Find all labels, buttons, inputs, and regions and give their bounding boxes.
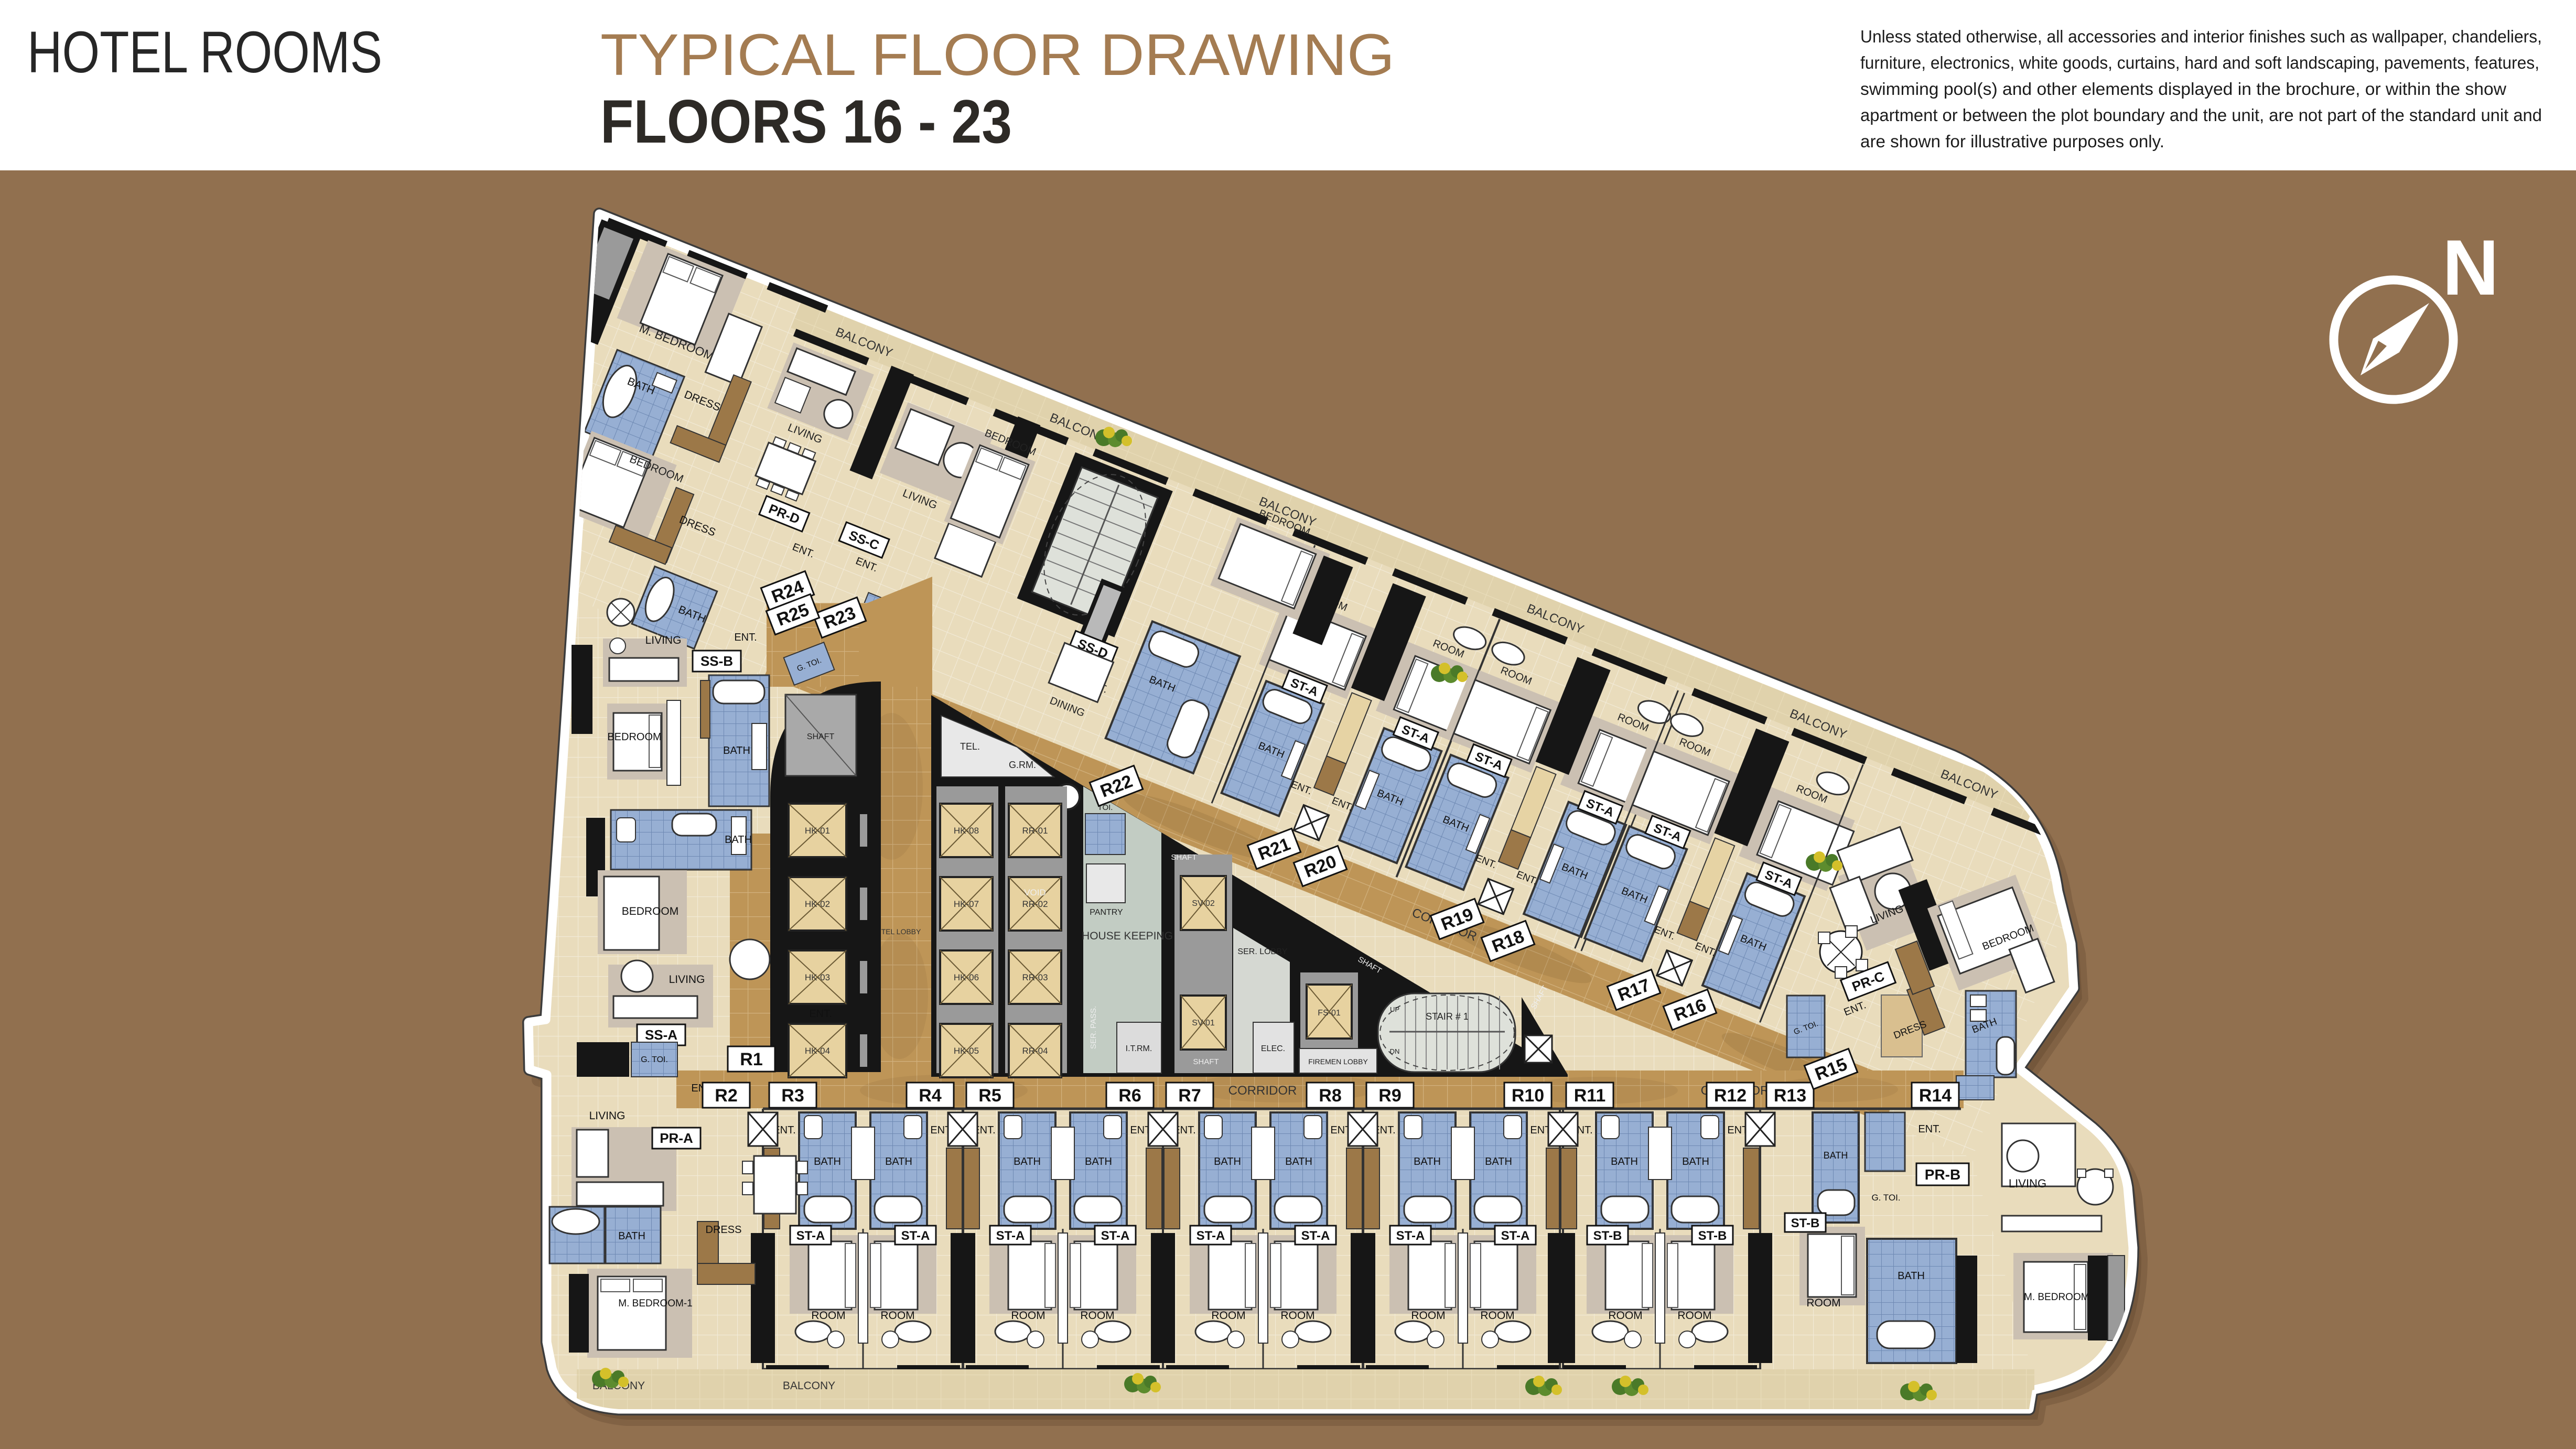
svg-text:N: N xyxy=(2442,223,2499,311)
svg-text:R5: R5 xyxy=(978,1086,1001,1106)
svg-text:SER. LOBBY: SER. LOBBY xyxy=(1237,947,1287,956)
svg-text:HK-07: HK-07 xyxy=(954,899,979,909)
svg-text:BALCONY: BALCONY xyxy=(783,1380,835,1392)
svg-text:BATH: BATH xyxy=(1414,1156,1441,1167)
svg-text:FS-01: FS-01 xyxy=(1318,1009,1341,1018)
svg-text:R12: R12 xyxy=(1714,1086,1747,1106)
svg-text:VOID: VOID xyxy=(1024,888,1046,897)
svg-text:HK-03: HK-03 xyxy=(805,972,830,982)
svg-text:R10: R10 xyxy=(1512,1086,1544,1106)
svg-text:R7: R7 xyxy=(1178,1086,1201,1106)
svg-text:HK-02: HK-02 xyxy=(805,899,830,909)
svg-text:HOTEL ROOMS: HOTEL ROOMS xyxy=(27,19,382,85)
svg-text:HK-01: HK-01 xyxy=(805,826,830,836)
svg-text:BATH: BATH xyxy=(1214,1156,1241,1167)
svg-text:STAIR # 1: STAIR # 1 xyxy=(1426,1011,1469,1022)
svg-text:ST-A: ST-A xyxy=(1101,1229,1130,1243)
svg-text:R2: R2 xyxy=(715,1086,737,1106)
svg-text:R13: R13 xyxy=(1774,1086,1806,1106)
svg-text:ST-B: ST-B xyxy=(1791,1216,1820,1230)
svg-text:apartment or between the plot: apartment or between the plot boundary a… xyxy=(1860,105,2542,125)
svg-text:ST-A: ST-A xyxy=(1301,1229,1330,1243)
svg-text:BATH: BATH xyxy=(814,1156,841,1167)
svg-text:ST-A: ST-A xyxy=(901,1229,930,1243)
svg-text:LIVING: LIVING xyxy=(669,974,705,986)
svg-text:LIVING: LIVING xyxy=(645,634,682,646)
svg-text:RR-03: RR-03 xyxy=(1022,972,1048,982)
svg-text:ST-B: ST-B xyxy=(1698,1229,1727,1243)
svg-text:BATH: BATH xyxy=(885,1156,912,1167)
svg-text:RR-02: RR-02 xyxy=(1022,899,1048,909)
svg-text:HOUSE KEEPING: HOUSE KEEPING xyxy=(1082,930,1173,942)
svg-text:TEL.: TEL. xyxy=(960,741,980,752)
svg-text:ST-A: ST-A xyxy=(996,1229,1025,1243)
svg-text:SV-01: SV-01 xyxy=(1192,1019,1215,1028)
svg-text:LIVING: LIVING xyxy=(589,1110,626,1122)
svg-text:R4: R4 xyxy=(919,1086,942,1106)
svg-text:G. TOI.: G. TOI. xyxy=(641,1055,668,1064)
svg-text:ROOM: ROOM xyxy=(1080,1310,1114,1322)
svg-text:BATH: BATH xyxy=(1485,1156,1512,1167)
svg-text:BATH: BATH xyxy=(725,834,752,846)
svg-text:HK-08: HK-08 xyxy=(954,826,979,836)
svg-text:SS-B: SS-B xyxy=(700,653,733,669)
svg-text:G.RM.: G.RM. xyxy=(1009,760,1036,770)
svg-text:ROOM: ROOM xyxy=(1280,1310,1314,1322)
svg-text:ENT.: ENT. xyxy=(809,1008,832,1020)
svg-text:BEDROOM: BEDROOM xyxy=(622,905,679,917)
svg-text:R14: R14 xyxy=(1919,1086,1952,1106)
svg-text:ROOM: ROOM xyxy=(1480,1310,1514,1322)
svg-text:ST-A: ST-A xyxy=(796,1229,825,1243)
svg-text:ENT.: ENT. xyxy=(1918,1123,1941,1135)
svg-text:SHAFT: SHAFT xyxy=(807,732,835,741)
svg-text:R1: R1 xyxy=(740,1050,762,1069)
svg-text:SER. PASS.: SER. PASS. xyxy=(1089,1006,1098,1049)
svg-text:ROOM: ROOM xyxy=(1677,1310,1711,1322)
svg-text:BATH: BATH xyxy=(1285,1156,1312,1167)
svg-text:ENT.: ENT. xyxy=(734,632,757,643)
svg-text:M. BEDROOM-1: M. BEDROOM-1 xyxy=(618,1298,692,1309)
svg-text:ROOM: ROOM xyxy=(1411,1310,1445,1322)
svg-text:SS-A: SS-A xyxy=(645,1027,677,1043)
svg-text:ST-A: ST-A xyxy=(1197,1229,1225,1243)
svg-text:ROOM: ROOM xyxy=(811,1310,845,1322)
svg-text:ST-A: ST-A xyxy=(1396,1229,1425,1243)
svg-text:DRESS: DRESS xyxy=(706,1224,742,1236)
svg-text:BATH: BATH xyxy=(1611,1156,1638,1167)
svg-text:R6: R6 xyxy=(1118,1086,1141,1106)
svg-text:BATH: BATH xyxy=(723,745,750,756)
svg-text:HK-04: HK-04 xyxy=(805,1046,830,1056)
svg-text:HK-06: HK-06 xyxy=(954,972,979,982)
svg-text:PR-A: PR-A xyxy=(660,1130,693,1146)
svg-text:ST-A: ST-A xyxy=(1501,1229,1530,1243)
svg-text:are shown for illustrative pur: are shown for illustrative purposes only… xyxy=(1860,132,2164,151)
svg-text:BEDROOM: BEDROOM xyxy=(607,731,661,743)
svg-text:R11: R11 xyxy=(1574,1086,1606,1106)
svg-text:BATH: BATH xyxy=(1824,1150,1848,1161)
svg-text:swimming pool(s) and other ele: swimming pool(s) and other elements disp… xyxy=(1860,79,2506,99)
svg-text:HK-05: HK-05 xyxy=(954,1046,979,1056)
svg-text:G. TOI.: G. TOI. xyxy=(1871,1193,1900,1203)
svg-text:LIVING: LIVING xyxy=(2009,1177,2046,1190)
svg-text:ROOM: ROOM xyxy=(880,1310,914,1322)
svg-text:PANTRY: PANTRY xyxy=(1090,908,1123,917)
svg-text:BATH: BATH xyxy=(1898,1270,1925,1282)
svg-text:RR-01: RR-01 xyxy=(1022,826,1048,836)
svg-text:furniture, electronics, white: furniture, electronics, white goods, cur… xyxy=(1860,53,2539,72)
svg-text:BATH: BATH xyxy=(1682,1156,1709,1167)
svg-text:PR-B: PR-B xyxy=(1925,1166,1960,1183)
svg-text:CORRIDOR: CORRIDOR xyxy=(1228,1084,1297,1098)
svg-text:M. BEDROOM-1: M. BEDROOM-1 xyxy=(2024,1292,2098,1303)
svg-text:SHAFT: SHAFT xyxy=(1171,853,1197,862)
svg-text:R3: R3 xyxy=(781,1086,804,1106)
svg-text:R9: R9 xyxy=(1378,1086,1401,1106)
svg-text:SHAFT: SHAFT xyxy=(1193,1057,1219,1066)
svg-text:R8: R8 xyxy=(1319,1086,1341,1106)
svg-text:FLOORS 16 - 23: FLOORS 16 - 23 xyxy=(600,87,1012,156)
svg-text:ROOM: ROOM xyxy=(1806,1297,1840,1309)
svg-text:BATH: BATH xyxy=(618,1230,645,1242)
svg-text:RR-04: RR-04 xyxy=(1022,1046,1048,1056)
svg-text:BATH: BATH xyxy=(1014,1156,1041,1167)
svg-text:ROOM: ROOM xyxy=(1608,1310,1642,1322)
svg-text:Unless stated otherwise, all a: Unless stated otherwise, all accessories… xyxy=(1860,27,2542,46)
svg-text:ROOM: ROOM xyxy=(1211,1310,1245,1322)
svg-text:ELEC.: ELEC. xyxy=(1261,1044,1285,1053)
svg-text:BATH: BATH xyxy=(1085,1156,1112,1167)
svg-text:I.T.RM.: I.T.RM. xyxy=(1126,1044,1152,1053)
svg-text:ROOM: ROOM xyxy=(1011,1310,1045,1322)
svg-text:SV-02: SV-02 xyxy=(1192,899,1215,908)
svg-text:FIREMEN LOBBY: FIREMEN LOBBY xyxy=(1308,1057,1368,1066)
svg-text:ST-B: ST-B xyxy=(1593,1229,1622,1243)
svg-text:TYPICAL FLOOR DRAWING: TYPICAL FLOOR DRAWING xyxy=(600,22,1395,88)
